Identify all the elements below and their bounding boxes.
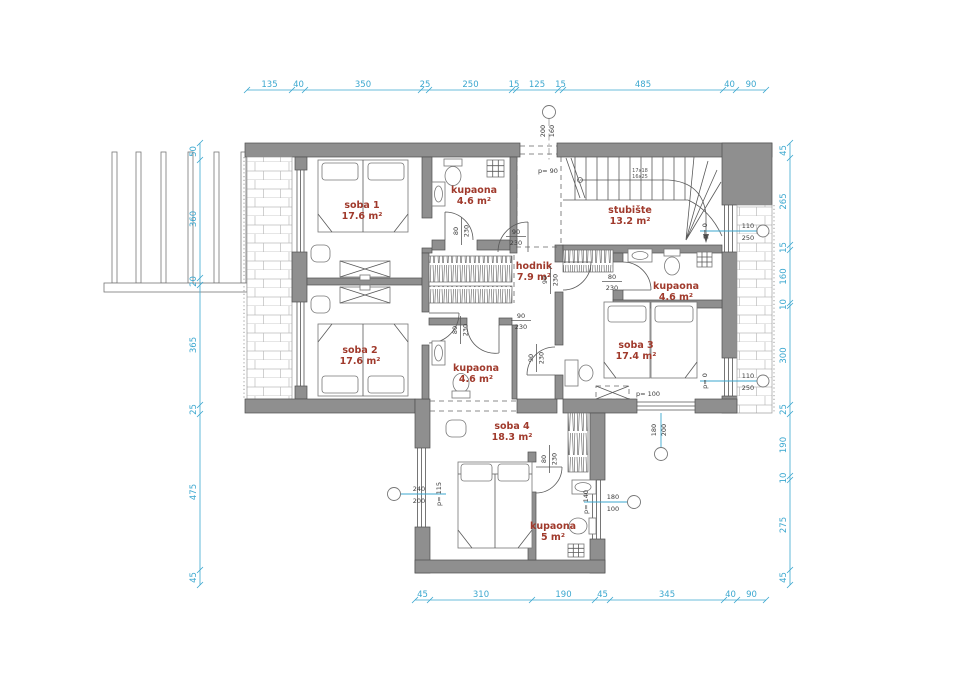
room-name: kupaona — [653, 281, 699, 292]
wall-soba3-west — [555, 375, 563, 399]
window-height: 250 — [742, 384, 754, 392]
room-name: kupaona — [453, 363, 499, 374]
wardrobe-soba2 — [429, 286, 512, 303]
washbasin-bowl — [435, 345, 443, 361]
window-soba1-west — [297, 170, 304, 252]
desk-drawer — [360, 275, 370, 280]
fixtures-kupaona3 — [628, 249, 712, 275]
window-mark — [543, 106, 556, 119]
door-kupaona3 — [623, 262, 651, 290]
dim-label: 250 — [462, 80, 478, 90]
room-area: 17.4 m² — [616, 351, 657, 362]
door-width: 90 — [527, 354, 535, 362]
dim-label: 90 — [746, 590, 757, 600]
armchair — [446, 420, 466, 437]
door-height: 230 — [462, 324, 470, 336]
room-label-soba3: soba 3 17.4 m² — [616, 340, 657, 362]
dim-label: 15 — [779, 242, 789, 253]
toilet — [665, 257, 680, 275]
annex-wall-west — [415, 399, 430, 448]
shower — [568, 544, 584, 557]
window-parapet: p= 100 — [636, 390, 660, 398]
pergola — [104, 152, 247, 292]
dim-label: 365 — [189, 337, 199, 353]
washbasin-bowl — [435, 186, 443, 202]
dim-label: 275 — [779, 517, 789, 533]
dim-chain — [244, 87, 769, 93]
room-label-kupaona5: kupaona 5 m² — [530, 521, 576, 543]
window-parapet: p= 115 — [435, 482, 443, 506]
wall-bottom-mid — [563, 399, 637, 413]
room-name: stubište — [608, 205, 652, 216]
wall-left-pier — [295, 157, 307, 170]
wall-soba1-east — [422, 248, 432, 253]
window-soba2-west — [297, 302, 304, 386]
wardrobe-soba1 — [429, 256, 512, 282]
room-name: kupaona — [530, 521, 576, 532]
shower — [697, 252, 712, 267]
door-size-label: 90230 — [511, 312, 531, 331]
pergola-slat — [214, 152, 219, 283]
window-parapet: p= 140 — [582, 490, 590, 514]
pillow — [608, 306, 646, 322]
toilet-tank — [444, 159, 462, 166]
pillow — [655, 306, 693, 322]
window-width: 110 — [742, 222, 754, 230]
dim-label: 15 — [509, 80, 520, 90]
dim-label: 25 — [420, 80, 431, 90]
dim-label: 40 — [293, 80, 304, 90]
window-height: 160 — [548, 125, 556, 137]
room-name: kupaona — [451, 185, 497, 196]
dim-label: 40 — [724, 80, 735, 90]
dim-label: 45 — [779, 145, 789, 156]
wall-closet-west — [422, 253, 429, 312]
room-label-kupaona2: kupaona 4.6 m² — [453, 363, 499, 385]
toilet-tank — [664, 249, 680, 256]
wall-kupaona2-north — [499, 318, 512, 325]
door-width: 90 — [512, 228, 520, 236]
pillow — [322, 163, 358, 180]
door-height: 230 — [552, 274, 560, 286]
pillow — [368, 376, 404, 393]
stair-treads — [575, 157, 685, 200]
window-mark — [757, 225, 769, 237]
window-width: 180 — [607, 493, 619, 501]
desk-drawer — [360, 285, 370, 290]
wall-closet-west — [422, 345, 429, 399]
shower — [487, 160, 504, 177]
dim-label: 45 — [189, 572, 199, 583]
dim-label: 485 — [635, 80, 651, 90]
window-parapet: p= 0 — [701, 373, 709, 389]
door-width: 90 — [517, 312, 525, 320]
dim-label: 45 — [779, 572, 789, 583]
wall-bottom-right — [695, 399, 737, 413]
dim-label: 25 — [189, 404, 199, 415]
armchair — [311, 245, 330, 262]
window-mark — [628, 496, 641, 509]
wall-right-corner — [722, 143, 772, 205]
room-area: 4.6 m² — [659, 292, 693, 303]
room-label-kupaona3: kupaona 4.6 m² — [653, 281, 699, 303]
room-name: hodnik — [516, 261, 553, 272]
dim-label: 20 — [189, 276, 199, 287]
door-width: 90 — [541, 276, 549, 284]
room-name: soba 3 — [618, 340, 653, 351]
armchair — [311, 296, 330, 313]
annex-wall-south — [415, 560, 605, 573]
pillow — [461, 464, 492, 481]
wardrobe-soba4 — [568, 413, 588, 472]
wall-kupaona3-west — [613, 253, 623, 262]
wall-left-pier — [295, 386, 307, 399]
pillow — [368, 163, 404, 180]
dim-label: 45 — [417, 590, 428, 600]
room-label-stubiste: stubište 13.2 m² — [608, 205, 652, 227]
wall-kupaona1-south — [477, 240, 510, 250]
room-name: soba 1 — [344, 200, 379, 211]
window-width: 200 — [539, 125, 547, 137]
window-width: 180 — [650, 424, 658, 436]
window-soba3-south — [637, 402, 695, 410]
wall-right — [722, 252, 737, 358]
dim-label: 475 — [189, 484, 199, 500]
opening-soba4-north — [430, 401, 517, 411]
dim-label: 190 — [555, 590, 571, 600]
window-height: 200 — [413, 497, 425, 505]
dim-label: 125 — [529, 80, 545, 90]
window-height: 200 — [660, 424, 668, 436]
door-size-label: 80230 — [602, 273, 622, 292]
wall-soba3-west — [555, 245, 563, 262]
room-label-kupaona1: kupaona 4.6 m² — [451, 185, 497, 207]
dim-label: 10 — [779, 473, 789, 484]
door-width: 80 — [540, 455, 548, 463]
staircase: 17x18 16x25 — [563, 157, 722, 243]
wall-top-left — [245, 143, 520, 157]
wall-kupaona2-east — [512, 325, 517, 399]
dim-label: 10 — [779, 299, 789, 310]
pillow — [322, 376, 358, 393]
door-height: 230 — [538, 352, 546, 364]
dim-label: 310 — [473, 590, 489, 600]
room-area: 17.6 m² — [342, 211, 383, 222]
wall-soba3-west — [555, 292, 563, 345]
door-width: 80 — [451, 326, 459, 334]
wall-left-pier — [292, 252, 307, 302]
chair — [579, 365, 593, 381]
room-area: 18.3 m² — [492, 432, 533, 443]
room-label-soba1: soba 1 17.6 m² — [342, 200, 383, 222]
dim-label: 25 — [779, 404, 789, 415]
door-size-label: 80230 — [452, 217, 471, 245]
window-parapet: p= 90 — [538, 167, 558, 175]
pergola-beam — [104, 283, 247, 292]
door-size-label: 80230 — [540, 445, 559, 473]
toilet-tank — [589, 518, 596, 534]
window-mark — [388, 488, 401, 501]
room-area: 13.2 m² — [610, 216, 651, 227]
door-height: 230 — [606, 284, 618, 292]
door-size-label: 90230 — [527, 344, 546, 372]
desk — [565, 360, 578, 386]
dim-label: 40 — [725, 590, 736, 600]
dim-label: 350 — [355, 80, 371, 90]
window-width: 110 — [742, 372, 754, 380]
wall-left-masonry — [247, 157, 292, 399]
dim-label: 50 — [189, 146, 199, 157]
dim-label: 160 — [779, 268, 789, 284]
floor-plan-drawing: 17x18 16x25 — [0, 0, 960, 680]
window-top — [520, 146, 557, 154]
window-parapet: p= 0 — [701, 223, 709, 239]
dim-label: 345 — [659, 590, 675, 600]
wall-bottom-upper-left — [245, 399, 415, 413]
door-width: 80 — [452, 227, 460, 235]
pergola-slat — [241, 152, 246, 283]
door-height: 230 — [463, 225, 471, 237]
floor-plan-canvas: 17x18 16x25 — [0, 0, 960, 680]
pergola-slat — [161, 152, 166, 283]
dim-label: 90 — [746, 80, 757, 90]
wall-soba1-east — [422, 157, 432, 218]
dim-label: 15 — [555, 80, 566, 90]
washbasin-bowl — [632, 252, 648, 260]
room-label-soba2: soba 2 17.6 m² — [340, 345, 381, 367]
door-kupaona2 — [467, 325, 499, 353]
dim-chain — [197, 140, 203, 588]
toilet — [445, 167, 461, 186]
room-area: 17.6 m² — [340, 356, 381, 367]
door-height: 230 — [551, 453, 559, 465]
dim-label: 45 — [597, 590, 608, 600]
wall-bottom-stub — [517, 399, 557, 413]
door-height: 230 — [510, 239, 522, 247]
dim-label: 300 — [779, 347, 789, 363]
window-right-lower — [725, 358, 733, 396]
dim-label: 360 — [189, 211, 199, 227]
annex-wall-east — [590, 413, 605, 480]
pergola-slat — [136, 152, 141, 283]
wall-kupaona1-south — [432, 240, 445, 250]
window-mark — [655, 448, 668, 461]
window-width: 240 — [413, 485, 425, 493]
dim-label: 135 — [261, 80, 277, 90]
dim-chain — [412, 597, 769, 603]
window-right-upper — [725, 205, 733, 252]
room-label-soba4: soba 4 18.3 m² — [492, 421, 533, 443]
dim-label: 265 — [779, 193, 789, 209]
door-kupaona5 — [536, 467, 562, 493]
wall-soba4-kupaona5 — [528, 452, 536, 462]
room-area: 4.6 m² — [457, 196, 491, 207]
room-name: soba 2 — [342, 345, 377, 356]
window-height: 250 — [742, 234, 754, 242]
window-height: 100 — [607, 505, 619, 513]
door-height: 230 — [515, 323, 527, 331]
pergola-slat — [112, 152, 117, 283]
stair-cut-line — [566, 158, 585, 198]
dim-label: 190 — [779, 437, 789, 453]
pillow — [498, 464, 529, 481]
door-width: 80 — [608, 273, 616, 281]
furniture-soba2 — [311, 285, 408, 396]
window-mark — [757, 375, 769, 387]
stair-tread-label: 16x25 — [632, 174, 648, 180]
room-area: 5 m² — [541, 532, 565, 543]
toilet-tank — [452, 391, 470, 398]
room-area: 4.6 m² — [459, 374, 493, 385]
room-name: soba 4 — [494, 421, 530, 432]
wardrobe-soba3 — [563, 250, 613, 272]
